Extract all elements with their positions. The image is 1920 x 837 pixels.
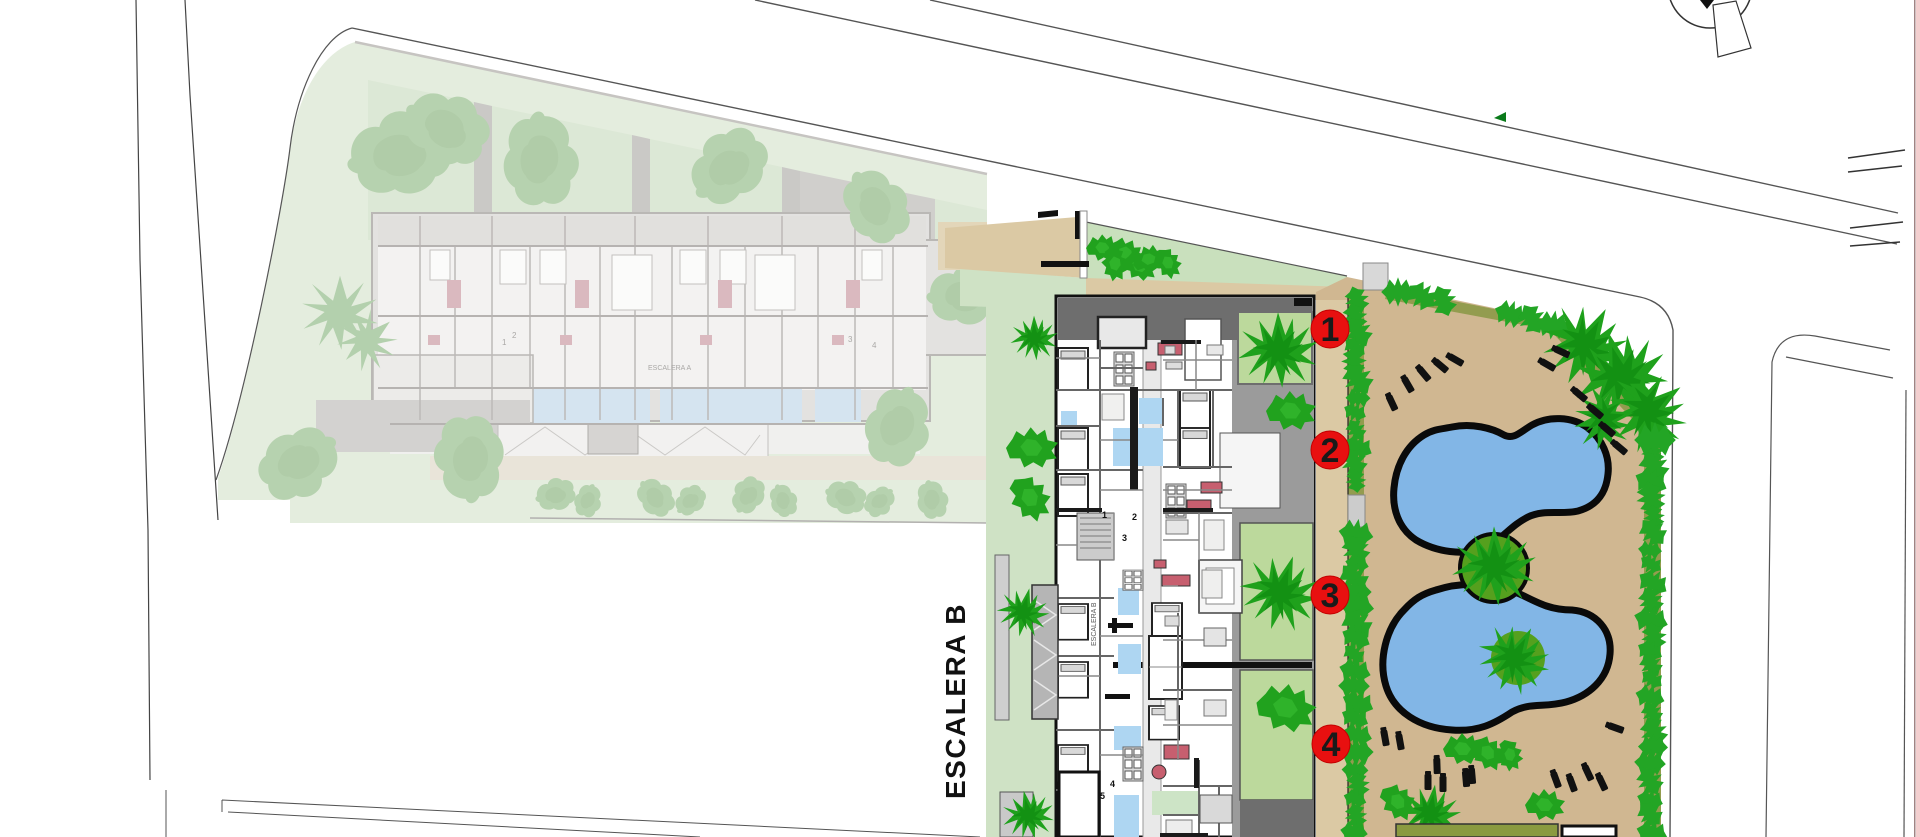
svg-text:4: 4	[1322, 726, 1341, 764]
svg-text:5: 5	[1100, 791, 1105, 801]
svg-text:2: 2	[1132, 512, 1137, 522]
svg-text:4: 4	[1110, 779, 1115, 789]
svg-text:3: 3	[1122, 533, 1127, 543]
svg-text:1: 1	[1321, 311, 1340, 349]
svg-text:3: 3	[1321, 577, 1340, 615]
svg-text:2: 2	[1321, 432, 1340, 470]
svg-text:ESCALERA B: ESCALERA B	[1091, 602, 1098, 646]
svg-text:ESCALERA B: ESCALERA B	[940, 603, 971, 799]
svg-text:1: 1	[1102, 510, 1107, 520]
